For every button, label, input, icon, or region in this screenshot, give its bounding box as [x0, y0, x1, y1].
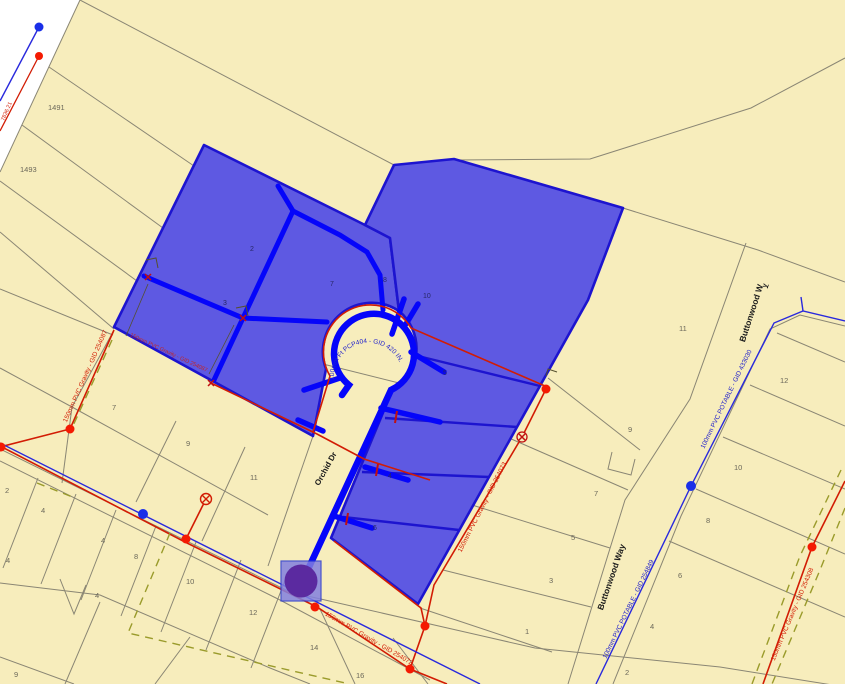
svg-text:12: 12 [780, 376, 788, 385]
svg-text:10: 10 [423, 293, 431, 300]
svg-text:10: 10 [734, 463, 742, 472]
svg-text:9: 9 [186, 439, 190, 448]
svg-text:8: 8 [134, 552, 138, 561]
svg-text:4: 4 [388, 473, 392, 480]
svg-text:3: 3 [549, 576, 553, 585]
svg-text:5: 5 [443, 370, 447, 377]
svg-text:7: 7 [330, 281, 334, 288]
svg-text:2: 2 [250, 246, 254, 253]
svg-text:1491: 1491 [48, 103, 65, 112]
svg-text:11: 11 [679, 324, 687, 333]
svg-text:6: 6 [373, 525, 377, 532]
svg-text:16: 16 [356, 671, 364, 680]
svg-text:7: 7 [594, 489, 598, 498]
svg-text:1: 1 [525, 627, 529, 636]
svg-text:2: 2 [5, 486, 9, 495]
svg-text:9: 9 [628, 425, 632, 434]
svg-text:14: 14 [310, 643, 318, 652]
svg-text:4: 4 [650, 622, 654, 631]
svg-text:4: 4 [6, 556, 10, 565]
svg-text:7: 7 [112, 403, 116, 412]
svg-text:8: 8 [383, 277, 387, 284]
svg-text:6: 6 [678, 571, 682, 580]
svg-text:11: 11 [250, 473, 258, 482]
svg-text:4: 4 [41, 506, 45, 515]
svg-text:1493: 1493 [20, 165, 37, 174]
svg-text:4: 4 [95, 591, 99, 600]
svg-text:5: 5 [571, 533, 575, 542]
svg-text:8: 8 [706, 516, 710, 525]
svg-text:10: 10 [186, 577, 194, 586]
svg-text:4: 4 [101, 536, 105, 545]
svg-text:12: 12 [249, 608, 257, 617]
svg-text:9: 9 [14, 670, 18, 679]
svg-text:2: 2 [625, 668, 629, 677]
svg-text:3: 3 [223, 300, 227, 307]
